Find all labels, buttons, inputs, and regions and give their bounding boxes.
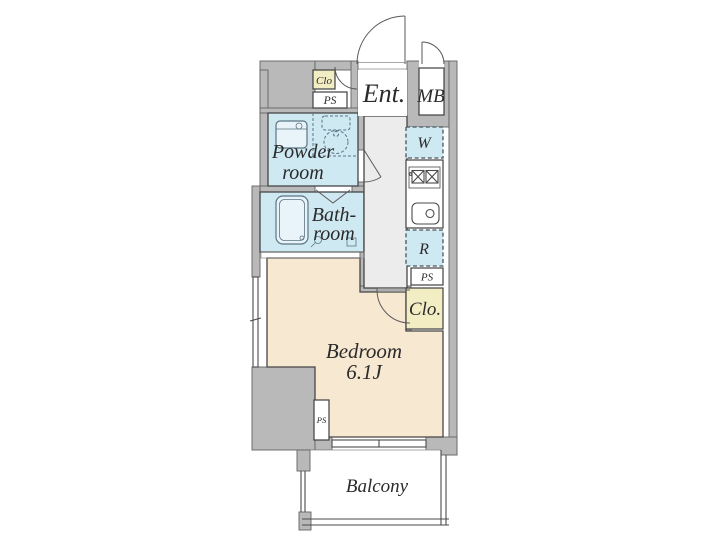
entrance-door-arc bbox=[357, 16, 405, 64]
wall-bedroom-southwest-block bbox=[252, 367, 315, 450]
corridor-floor bbox=[364, 116, 407, 288]
label-washer-space: W bbox=[417, 135, 432, 152]
wall-powder-east-upper bbox=[358, 113, 364, 150]
label-pipe-space-entrance: PS bbox=[323, 95, 337, 107]
label-bedroom-size: 6.1J bbox=[346, 360, 383, 384]
label-refrigerator-space: R bbox=[418, 241, 429, 258]
wall-west-upper bbox=[260, 70, 268, 190]
wall-top bbox=[315, 61, 352, 70]
floor-plan: Ent. MB Clo PS Powder room Bath- room W … bbox=[0, 0, 720, 540]
balcony-wall-stub-top bbox=[297, 450, 310, 471]
label-balcony: Balcony bbox=[346, 476, 409, 497]
label-pipe-space-kitchen: PS bbox=[420, 272, 434, 284]
label-powder-room-line1: Powder bbox=[271, 141, 334, 163]
label-powder-room-line2: room bbox=[282, 162, 323, 184]
label-pipe-space-bedroom: PS bbox=[316, 415, 327, 425]
label-bathroom-line2: room bbox=[313, 223, 354, 245]
meter-box-opening bbox=[419, 60, 444, 68]
wall-powder-north bbox=[260, 108, 358, 113]
label-closet-entrance: Clo bbox=[316, 75, 332, 87]
balcony-wall-stub-bottom bbox=[299, 512, 311, 530]
label-closet-bedroom: Clo. bbox=[409, 299, 441, 320]
wall-east bbox=[449, 61, 457, 455]
label-entrance: Ent. bbox=[362, 79, 406, 108]
bath-bedroom-partition bbox=[261, 252, 364, 258]
wall-powder-bath-divider bbox=[260, 186, 315, 192]
wall-west-bath bbox=[252, 186, 260, 277]
window-west-tick bbox=[250, 318, 261, 321]
label-meter-box: MB bbox=[416, 86, 445, 107]
wall-powder-bath-divider-east bbox=[352, 186, 364, 192]
window-west bbox=[253, 277, 258, 367]
